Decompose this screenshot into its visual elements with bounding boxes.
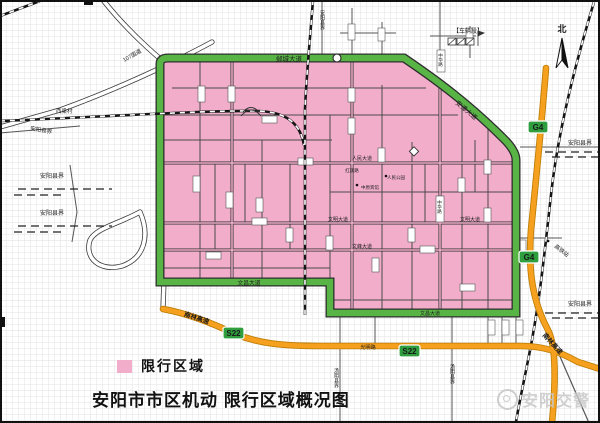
compass-north-label: 北: [557, 23, 566, 34]
svg-text:G4: G4: [533, 123, 544, 132]
zhonghua-road-label: 中华路: [437, 199, 443, 215]
map-canvas: G4 G4 S22 S22 邺城大道 安漳大道 文昌大道 文昌大道 人民大道 红…: [0, 0, 600, 423]
zhongyuan-hotel-label: 中原宾馆: [361, 184, 379, 191]
wenfeng-avenue-label: 文峰大道: [352, 243, 372, 250]
wenming-avenue-label: 文明大道: [328, 216, 348, 223]
badge-s22-mid: S22: [399, 345, 420, 357]
hongqi-road-label: 红旗路: [345, 167, 359, 174]
zhongyuan-hotel-dot: [356, 184, 359, 187]
wenchang-avenue-label-2: 文昌大道: [420, 310, 440, 317]
anyang-county-boundary-label: 安阳县界: [568, 300, 592, 308]
badge-s22-west: S22: [223, 327, 244, 339]
anyang-county-boundary-label: 安阳县界: [568, 139, 592, 147]
tangyin-county-boundary-label: 汤阴县界: [333, 367, 339, 389]
wenming-avenue-label-2: 文明大道: [460, 216, 480, 223]
interchange-circle-icon: [333, 54, 341, 62]
anyang-county-boundary-label: 安阳县界: [319, 9, 325, 31]
tangyin-county-boundary-label: 汤阴县界: [449, 363, 455, 385]
renmin-avenue-label: 人民大道: [352, 155, 372, 162]
zhonghua-road-label-north: 中华路: [438, 52, 444, 68]
anyang-county-boundary-label: 安阳县界: [40, 209, 64, 217]
svg-text:S22: S22: [226, 329, 241, 338]
svg-text:S22: S22: [402, 347, 417, 356]
guangming-road-label: 光明路: [360, 343, 376, 351]
wenchang-avenue-label: 文昌大道: [237, 279, 260, 287]
badge-g4-south: G4: [519, 251, 539, 263]
svg-text:G4: G4: [524, 253, 535, 262]
hsr-station-dot: [547, 240, 550, 243]
xiliang-village-label: 西梁村: [56, 107, 73, 115]
anyang-restriction-map: G4 G4 S22 S22 邺城大道 安漳大道 文昌大道 文昌大道 人民大道 红…: [0, 0, 600, 423]
badge-g4-north: G4: [528, 121, 548, 133]
anyang-county-boundary-label: 安阳县界: [40, 172, 64, 180]
yecheng-avenue-label: 邺城大道: [276, 54, 303, 63]
